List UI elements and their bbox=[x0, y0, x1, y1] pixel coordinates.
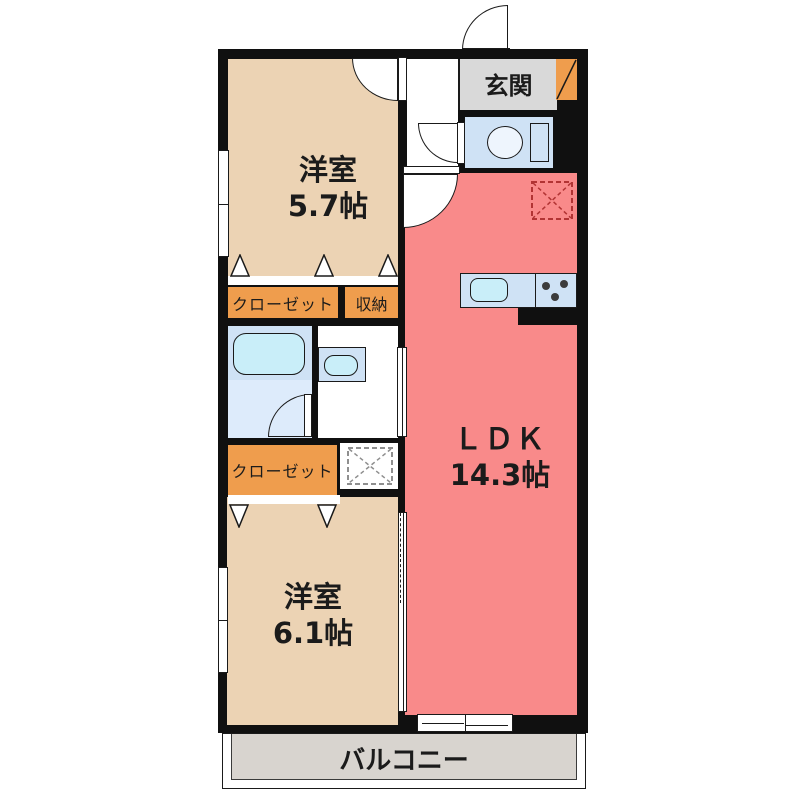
washbasin-icon bbox=[324, 355, 358, 376]
balcony-label: バルコニー bbox=[223, 745, 585, 778]
closet1-label: クローゼット bbox=[232, 291, 334, 315]
toilet-door-leaf bbox=[457, 122, 465, 164]
washroom-ldk-sliding-door bbox=[397, 347, 407, 437]
ldk-label: ＬＤＫ 14.3帖 bbox=[410, 421, 590, 494]
bedroom2-area: 6.1帖 bbox=[238, 615, 388, 651]
bathroom-door-leaf bbox=[304, 394, 312, 437]
folding-door-triangle bbox=[314, 254, 334, 277]
bedroom1-name: 洋室 bbox=[253, 152, 403, 188]
closet1-track bbox=[228, 276, 398, 285]
bedroom1-window bbox=[218, 150, 229, 257]
closet1-box: クローゼット bbox=[228, 287, 338, 318]
balcony-sliding-window bbox=[417, 714, 513, 732]
balcony: バルコニー bbox=[222, 733, 586, 789]
washroom-floor bbox=[318, 326, 398, 438]
storage-label: 収納 bbox=[355, 291, 387, 315]
stove-burner-icon bbox=[542, 282, 550, 290]
washing-machine-space bbox=[347, 447, 393, 485]
bedroom2-ldk-sliding-partition bbox=[398, 512, 407, 712]
plan-walls: クローゼット 収納 bbox=[218, 49, 588, 733]
kitchen-sink-icon bbox=[470, 278, 508, 302]
genkan-label: 玄関 bbox=[460, 71, 557, 101]
closet2-track bbox=[228, 495, 340, 504]
bedroom2-window bbox=[218, 567, 228, 673]
bedroom1-label: 洋室 5.7帖 bbox=[253, 152, 403, 225]
folding-door-triangle bbox=[229, 504, 249, 528]
storage-box: 収納 bbox=[345, 287, 398, 318]
stove-burner-icon bbox=[551, 293, 559, 301]
bathtub-icon bbox=[233, 333, 305, 375]
shoe-cabinet-diagonal bbox=[556, 59, 577, 100]
ldk-door-leaf bbox=[403, 166, 460, 174]
closet2-box: クローゼット bbox=[228, 445, 337, 495]
stove-burner-icon bbox=[560, 280, 568, 288]
ldk-area: 14.3帖 bbox=[410, 457, 590, 493]
toilet-tank-icon bbox=[530, 123, 549, 162]
folding-door-triangle bbox=[378, 254, 398, 277]
kitchen-wall-stub bbox=[518, 308, 577, 325]
bedroom2-name: 洋室 bbox=[238, 579, 388, 615]
bedroom1-area: 5.7帖 bbox=[253, 188, 403, 224]
floor-plan: クローゼット 収納 bbox=[0, 0, 800, 800]
bedroom1-door-leaf bbox=[398, 57, 407, 101]
toilet-icon bbox=[487, 126, 523, 159]
entrance-door-swing-arc bbox=[462, 5, 508, 50]
shoe-cabinet bbox=[556, 59, 577, 100]
counter-divider bbox=[535, 274, 536, 307]
closet2-label: クローゼット bbox=[231, 458, 333, 482]
folding-door-triangle bbox=[230, 254, 250, 277]
refrigerator-space bbox=[531, 181, 573, 220]
kitchen-counter bbox=[460, 273, 577, 308]
bedroom2-label: 洋室 6.1帖 bbox=[238, 579, 388, 652]
ldk-name: ＬＤＫ bbox=[410, 421, 590, 457]
folding-door-triangle bbox=[317, 504, 337, 528]
